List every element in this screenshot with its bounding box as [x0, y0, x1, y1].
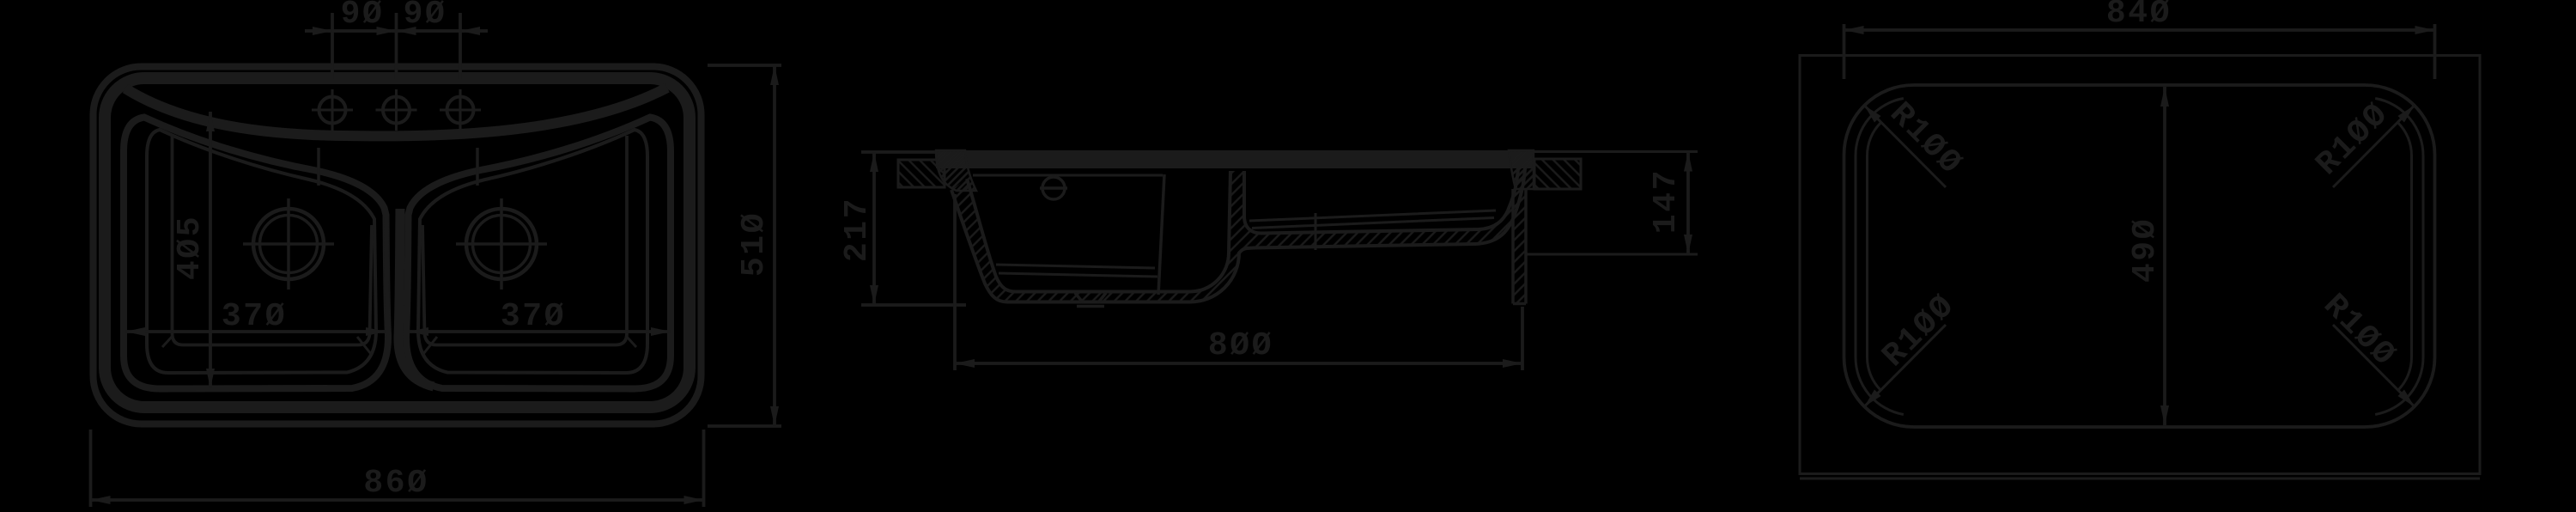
svg-text:9Ø: 9Ø — [341, 0, 385, 33]
svg-text:84Ø: 84Ø — [2106, 0, 2172, 32]
svg-text:R1ØØ: R1ØØ — [2316, 287, 2403, 375]
svg-text:49Ø: 49Ø — [2127, 217, 2164, 283]
svg-text:37Ø: 37Ø — [501, 298, 566, 335]
svg-text:8ØØ: 8ØØ — [1208, 327, 1273, 364]
svg-text:217: 217 — [839, 197, 876, 262]
svg-text:147: 147 — [1648, 168, 1685, 234]
svg-text:37Ø: 37Ø — [222, 298, 287, 335]
svg-text:86Ø: 86Ø — [363, 465, 428, 502]
svg-text:4Ø5: 4Ø5 — [172, 215, 209, 280]
svg-text:51Ø: 51Ø — [736, 211, 773, 277]
svg-text:R1ØØ: R1ØØ — [2309, 95, 2397, 183]
svg-text:R1ØØ: R1ØØ — [1875, 287, 1963, 375]
svg-text:R1ØØ: R1ØØ — [1882, 95, 1970, 183]
svg-text:9Ø: 9Ø — [404, 0, 447, 33]
